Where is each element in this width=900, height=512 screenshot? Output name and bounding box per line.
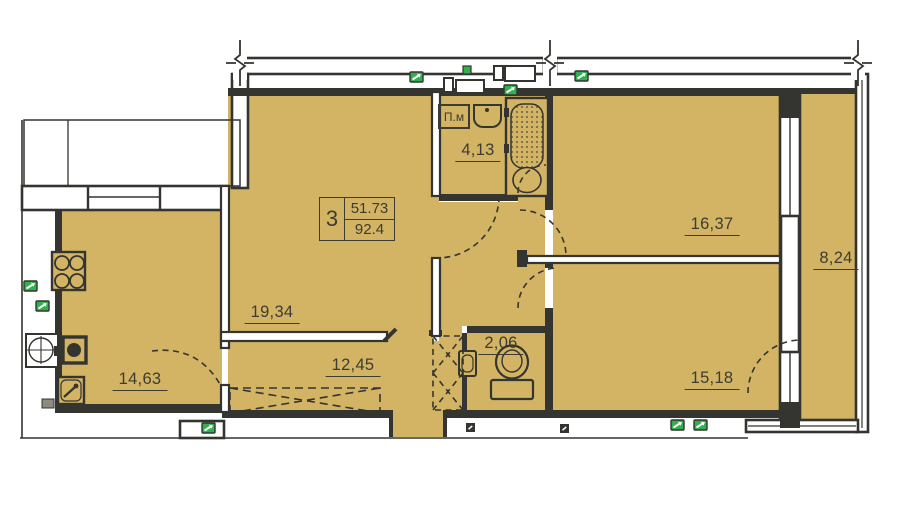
vent-marker-icon xyxy=(694,420,707,430)
window-pier xyxy=(781,216,799,352)
bathtub xyxy=(504,98,548,196)
vent-marker-icon xyxy=(24,281,37,291)
vent-marker-icon xyxy=(671,420,684,430)
dark-marker-icon xyxy=(560,424,569,433)
room-bedroom1 xyxy=(553,96,780,257)
small-fixture xyxy=(42,399,54,408)
area-label-bedroom2: 15,18 xyxy=(685,369,740,390)
area-label-hall: 12,45 xyxy=(326,356,381,377)
entrance-opening xyxy=(389,410,447,437)
wall xyxy=(221,186,229,348)
dark-marker-icon xyxy=(466,423,475,432)
balcony-outline xyxy=(24,120,240,186)
stamp-living-area: 51.73 xyxy=(345,198,394,220)
vent-marker-icon xyxy=(36,301,49,311)
wall xyxy=(221,385,229,412)
vent-marker-icon xyxy=(463,66,471,74)
vent-marker-icon xyxy=(202,423,215,433)
stamp-room-count: 3 xyxy=(320,198,345,240)
living-door-opening xyxy=(433,196,439,258)
floor-plan-svg xyxy=(0,0,900,512)
bath-sink xyxy=(474,105,501,127)
area-label-bedroom1: 16,37 xyxy=(685,215,740,236)
kitchen-window-wall xyxy=(22,186,228,210)
washing-machine-label: П.м xyxy=(438,104,470,129)
area-label-kitchen: 14,63 xyxy=(113,370,168,391)
kitchen-sink xyxy=(58,377,84,404)
vent-marker-icon xyxy=(575,71,588,81)
area-label-bathroom: 4,13 xyxy=(455,141,500,162)
kitchen-sink-unit xyxy=(63,337,86,363)
wall xyxy=(432,258,440,336)
stamp-total-area: 92.4 xyxy=(345,220,394,241)
wall xyxy=(527,256,780,263)
floor-plan: 19,34 14,63 12,45 4,13 2,06 16,37 15,18 … xyxy=(0,0,900,512)
break-mark xyxy=(536,40,564,86)
vent-marker-icon xyxy=(410,72,423,82)
stove xyxy=(52,252,85,290)
wall xyxy=(556,58,856,74)
apartment-stamp: 3 51.73 92.4 xyxy=(319,197,395,241)
wall xyxy=(221,332,387,341)
area-label-living: 19,34 xyxy=(245,303,300,324)
area-label-loggia: 8,24 xyxy=(813,249,858,270)
room-bedroom2 xyxy=(553,262,780,410)
vent-marker-icon xyxy=(504,85,517,95)
break-mark xyxy=(226,40,254,86)
area-label-wc: 2,06 xyxy=(478,334,523,355)
